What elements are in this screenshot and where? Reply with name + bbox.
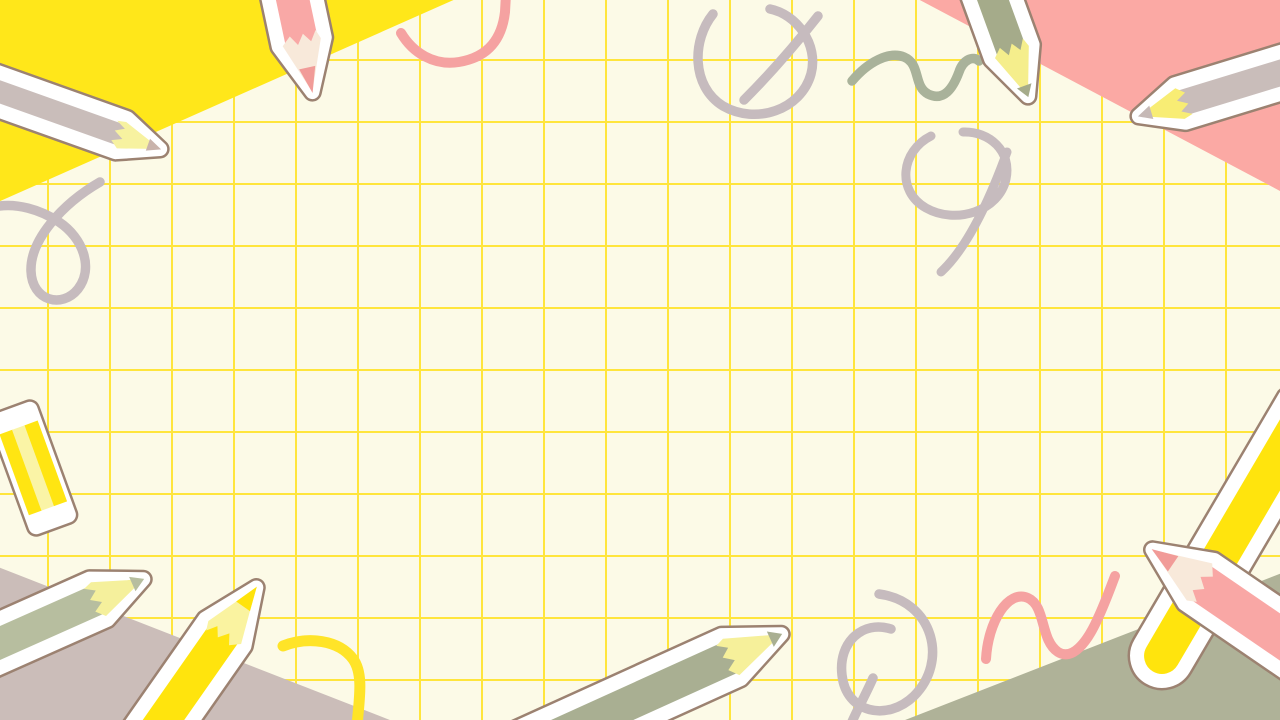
squiggle-sage-wave: [852, 55, 979, 96]
decorative-stationery-background: [0, 0, 1280, 720]
pencil-sage-bottom-center: [474, 612, 793, 720]
squiggle-gray-left-loop: [0, 182, 100, 300]
squiggle-gray-top-loop: [698, 9, 818, 114]
decorative-scene-svg: [0, 0, 1280, 720]
squiggle-gray-bottom-loop: [842, 594, 933, 720]
squiggle-gray-right-loop: [906, 132, 1007, 272]
eraser-illustration: [0, 398, 80, 538]
